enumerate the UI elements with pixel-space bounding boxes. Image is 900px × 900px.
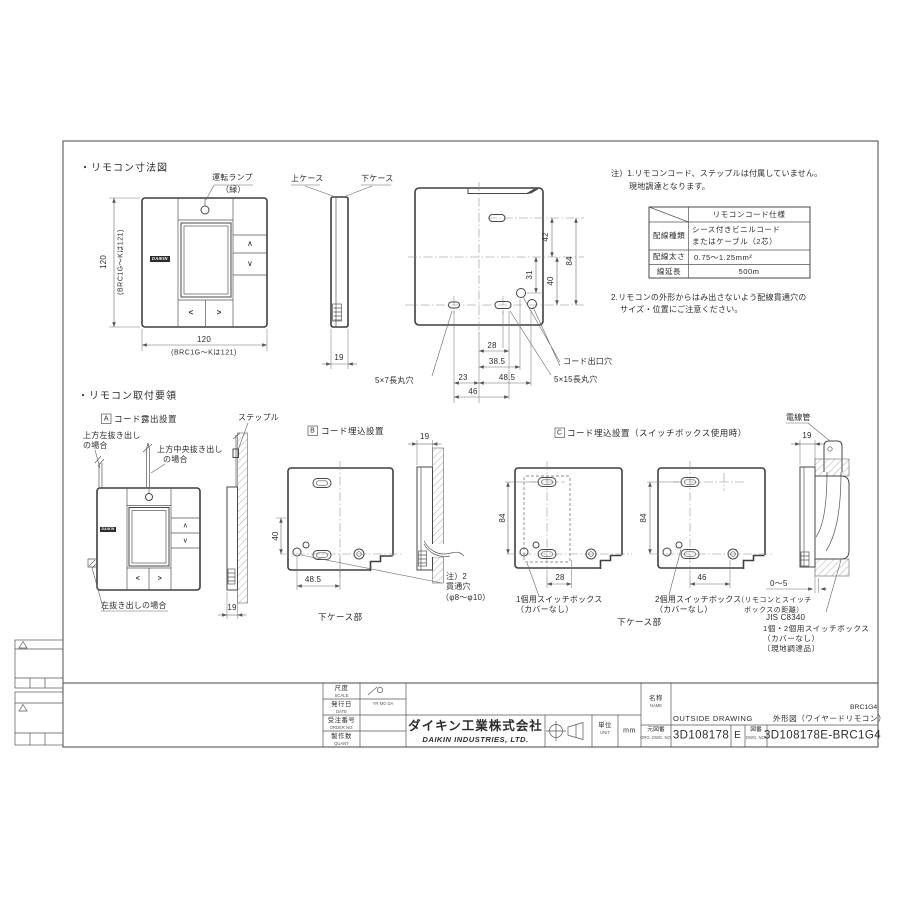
switchbox2-label2: （カバーなし） [655,606,712,614]
name-label: 名称 [649,696,663,702]
date-value: YR MO DA [373,702,394,706]
name-label-en: NAME [650,704,662,708]
table-row-label: 線延長 [657,268,681,276]
org-dwg-no-label: 元図番 [647,728,664,734]
cord-exit-label: コード出口穴 [563,358,612,366]
dim-46: 46 [468,388,477,396]
right-button: > [217,309,222,317]
switchbox2-label: 2個用スイッチボックス [655,596,741,604]
lower-case-section-label: 下ケース部 [318,613,363,622]
company-name-jp: ダイキン工業株式会社 [408,720,543,733]
drawing-name-jp: 外形図（ワイヤードリモコン） [773,715,886,723]
dim-31: 31 [526,270,534,279]
org-dwg-no: 3D108178 [673,730,729,742]
switchbox1-label: 1個用スイッチボックス [516,596,602,604]
wall-hatch [238,433,248,603]
through-hole-label: 貫通穴 [446,583,471,591]
note-2-line1: 2.リモコンの外形からはみ出さないよう配線貫通穴の [611,294,807,302]
operation-lamp-icon [146,494,153,501]
staple-label: ステップル [238,414,279,422]
wall-hatch [815,459,849,476]
dim-height-note: (BRC1G〜Kは121) [118,229,125,295]
unit-label: 単位 [598,722,612,728]
org-dwg-no-label-en: ORG. DWG. NO. [640,736,672,740]
dim-28-c: 28 [555,574,564,582]
lcd-panel [181,223,231,297]
dim-0-5: 0〜5 [770,580,788,588]
scale-label-en: SCALE [335,693,349,697]
section2-title: ・リモコン取付要領 [78,392,177,402]
section-b-title: コード埋込設置 [321,427,384,436]
dim-48-5-b: 48.5 [305,576,321,584]
top-left-case-label: 上方左抜き出し [83,432,140,440]
section-a-title: コード露出設置 [114,415,177,424]
date-label: 発行日 [331,701,352,707]
cord-exit-hole [517,289,526,298]
order-no-label-en: ORDER NO. [330,725,354,729]
dwg-no-label-en: DWG. NO. [746,736,766,740]
wall-hatch [815,559,849,576]
dim-width: 120 [197,336,211,344]
wall-hatch [433,448,444,545]
third-angle-projection-icon [546,721,583,741]
dim-48-5: 48.5 [499,374,515,382]
revision-blocks [15,640,63,745]
jis-note-line1: 1個・2個用スイッチボックス [763,625,869,633]
top-center-case-label2: の場合 [163,456,188,464]
through-hole [303,542,309,548]
table-cell: 0.75〜1.25mm² [694,254,752,262]
engineering-drawing: ・リモコン寸法図 ・リモコン取付要領 運転ランプ （緑） 上ケース 下ケース 1… [0,0,900,900]
daikin-logo: DAIKIN [100,527,116,532]
remote-side-view [331,197,348,327]
dim-width-note: (BRC1G〜Kは121) [171,350,237,357]
revision-triangle-icon [19,642,27,649]
daikin-logo: DAIKIN [150,256,170,262]
table-row-label: 配線種類 [653,232,685,240]
note-1-line1: 注）1.リモコンコード、ステップルは付属していません。 [611,170,822,178]
up-button: ∧ [183,523,189,530]
table-row-label: 配線太さ [653,253,685,261]
operation-lamp-icon [201,206,209,214]
section1-title: ・リモコン寸法図 [80,164,168,174]
revision-letter: E [734,731,742,741]
model-code: BRC1G4 [850,705,877,712]
wall-hatch [433,557,444,583]
up-button: ∧ [247,240,253,248]
section-c [505,428,772,596]
note-1-line2: 現地調達となります。 [629,183,710,191]
through-hole [293,548,301,556]
dim-depth-a: 19 [227,604,236,612]
through-hole-dia: （φ8〜φ10） [441,594,490,602]
dim-depth-d: 19 [802,432,811,440]
hole-5x7-label: 5×7長丸穴 [375,377,414,385]
left-button: < [136,576,141,583]
tag-c: C [557,430,563,437]
drawing-linework [0,0,900,900]
order-no-label: 受注番号 [328,717,356,723]
dim-46-c: 46 [697,574,706,582]
top-left-case-label2: の場合 [83,442,108,450]
dim-23: 23 [458,374,467,382]
unit-value: mm [623,728,636,735]
dim-40-b: 40 [272,531,280,540]
dim-84-c2: 84 [640,513,648,522]
switch-box-side [815,476,849,559]
scale-label: 尺度 [335,686,349,692]
jis-note-line3: 〔現地調達品〕 [763,645,820,653]
dim-height: 120 [100,255,108,269]
dim-28: 28 [487,342,496,350]
table-header: リモコンコード仕様 [713,211,786,219]
right-button: > [158,576,163,583]
switchbox1-label2: （カバーなし） [516,606,573,614]
conduit-label: 電線管 [786,414,811,422]
down-button: ∨ [183,538,189,545]
upper-case-label: 上ケース [291,175,323,183]
quantity-label-en: QUANT [334,741,349,745]
tag-a: A [104,416,109,423]
lower-case-section-label: 下ケース部 [617,618,662,627]
conduit-pipe [816,472,841,551]
unit-label-en: UNIT [600,730,610,734]
dim-84-c1: 84 [499,513,507,522]
lamp-color-label: （緑） [221,186,246,194]
scale-symbol-icon [368,687,383,695]
distance-note-line1: （リモコンとスイッチ [737,597,812,604]
top-center-case-label: 上方中央抜き出し [157,446,223,454]
dwg-no: 3D108178E-BRC1G4 [764,730,881,742]
dwg-no-label: 図番 [750,728,762,734]
dim-38-5: 38.5 [489,358,505,366]
dim-depth: 19 [334,354,343,362]
section-b [276,426,464,590]
dim-40: 40 [547,276,555,285]
down-button: ∨ [247,260,253,268]
operation-lamp-label: 運転ランプ [212,174,253,182]
note-2-line2: サイズ・位置にご注意ください。 [620,306,743,314]
tag-b: B [310,428,315,435]
dim-84: 84 [566,256,574,265]
left-button: < [189,309,194,317]
dim-42: 42 [542,232,550,241]
company-name-en: DAIKIN INDUSTRIES, LTD. [422,736,528,744]
jis-note-line2: （カバーなし） [763,635,820,643]
left-case-label: 左抜き出しの場合 [101,602,167,610]
section-c-title: コード埋込設置（スイッチボックス使用時） [567,429,747,438]
revision-triangle-icon [19,705,27,712]
date-label-en: DATE [336,709,347,713]
table-cell: またはケーブル（2芯） [692,238,777,246]
jis-standard: JIS C8340 [766,614,805,622]
quantity-label: 製作数 [331,733,352,739]
dim-depth-b: 19 [420,433,429,441]
table-cell: シース付きビニルコード [692,226,781,234]
hole-5x15-label: 5×15長丸穴 [554,376,597,384]
lower-case-label: 下ケース [361,175,393,183]
table-cell: 500m [739,268,760,276]
note2-ref: 注）2 [446,573,467,581]
drawing-name-en: OUTSIDE DRAWING [673,715,753,723]
